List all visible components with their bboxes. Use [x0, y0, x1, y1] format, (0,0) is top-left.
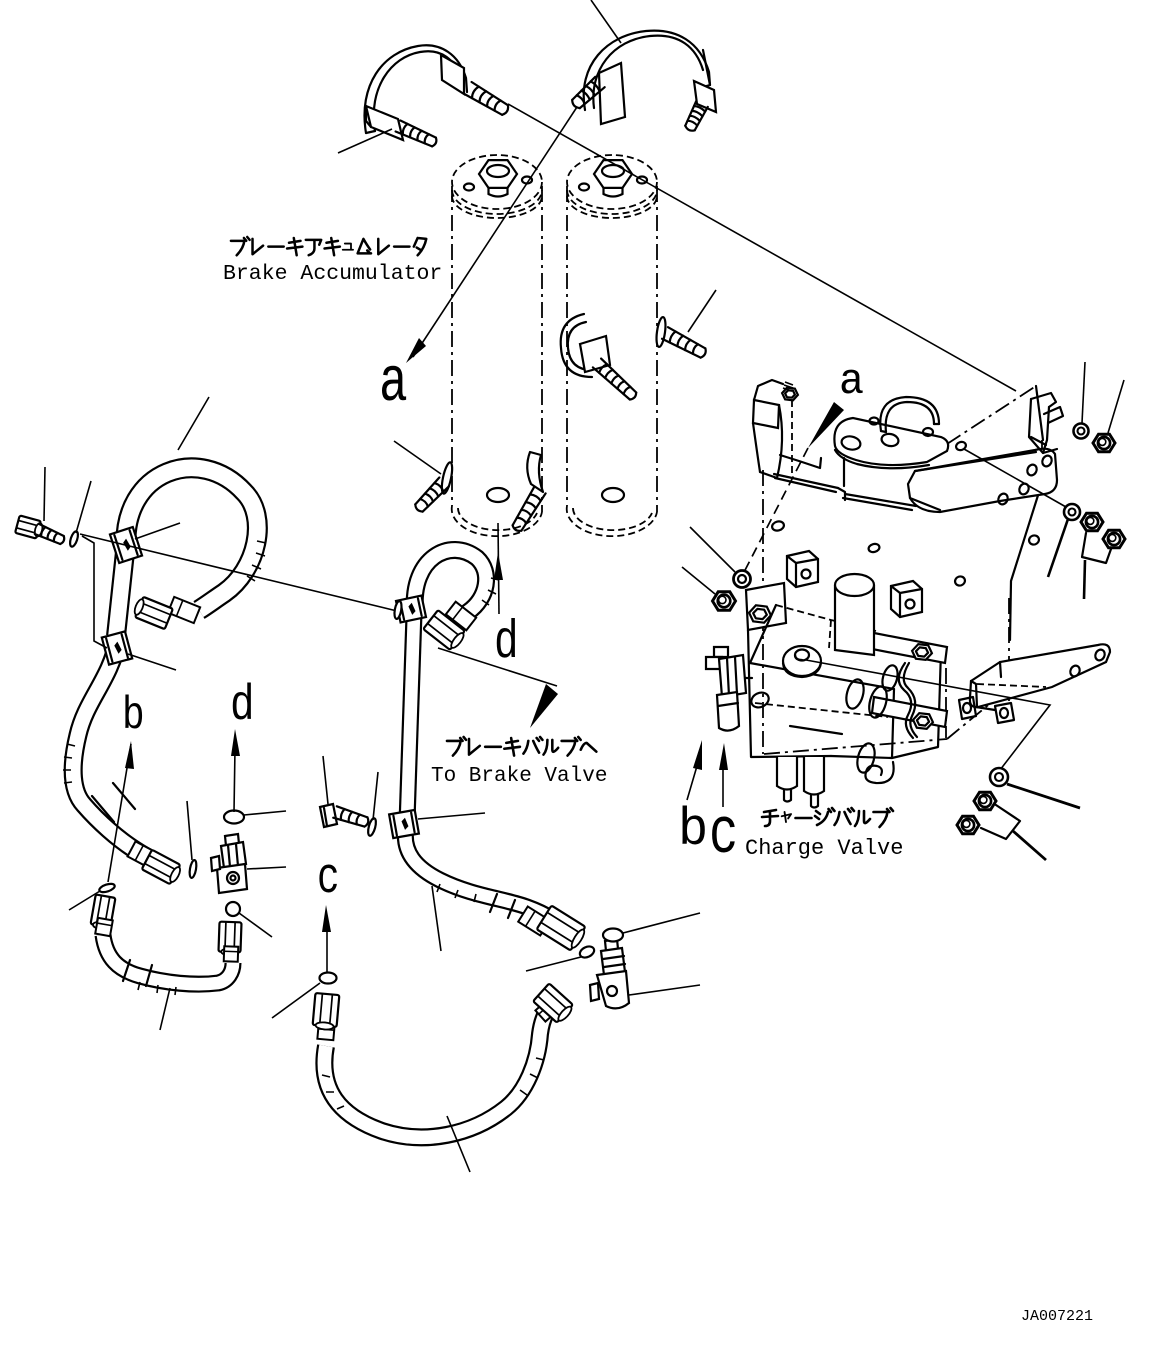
svg-text:d: d	[230, 677, 255, 734]
svg-text:d: d	[494, 613, 519, 674]
svg-text:To Brake Valve: To Brake Valve	[431, 765, 607, 788]
svg-text:b: b	[678, 800, 708, 860]
svg-text:b: b	[122, 690, 145, 742]
svg-text:c: c	[317, 851, 340, 908]
svg-text:Brake Accumulator: Brake Accumulator	[223, 262, 442, 286]
svg-text:JA007221: JA007221	[1021, 1308, 1093, 1325]
svg-text:a: a	[839, 356, 864, 406]
svg-text:c: c	[709, 799, 738, 873]
svg-text:a: a	[379, 347, 408, 419]
svg-text:Charge Valve: Charge Valve	[745, 836, 903, 861]
